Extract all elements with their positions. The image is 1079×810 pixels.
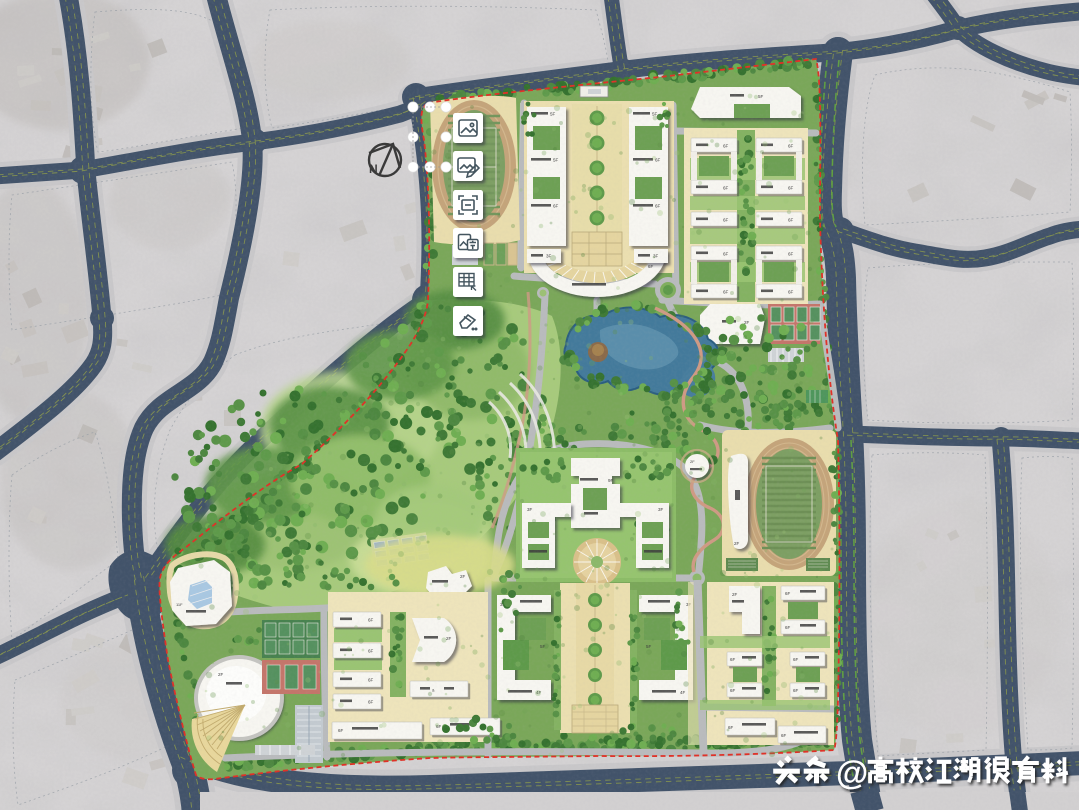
svg-text:N: N	[369, 162, 378, 176]
svg-text:@: @	[836, 754, 868, 791]
